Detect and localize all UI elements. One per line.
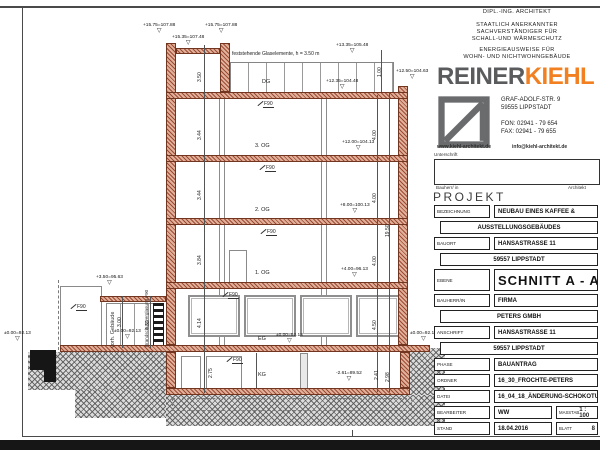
sheet-top-edge [0,6,600,8]
dim-text: 4.00 [373,130,378,140]
dg-glazing [230,62,394,93]
floor-label-3og: 3. OG [255,143,270,149]
signature-title: Unterschrift [434,152,458,157]
architect-mark-icon [437,95,491,149]
level-triangle-icon: ▽ [352,273,357,278]
kg-door [181,356,201,390]
level-triangle-icon: ▽ [157,29,162,34]
level-triangle-icon: ▽ [421,337,426,342]
row-value-datei: 16_04_18_ÄNDERUNG-SCHOKOTURM.S1 [494,390,598,403]
floor-label-2og: 2. OG [255,207,270,213]
f90-label: F90 [265,165,276,172]
slab-roof-deck [166,92,408,99]
row-value-bezeichnung: NEUBAU EINES KAFFEE & [494,205,598,218]
level-triangle-icon: ▽ [350,49,355,54]
f90-label: F90 [263,101,274,108]
level-marker: ±0.00=92.13▽ [114,330,141,340]
level-marker: +15.75=107.88▽ [205,24,237,34]
drawing-title: SCHNITT A - A [494,269,598,291]
level-marker: ±0.00=92.13▽ [276,334,303,344]
eg-window [300,295,352,337]
floor-label-eg: EG [258,336,266,342]
existing-building-outline [60,286,102,348]
wall-right [398,86,408,345]
level-marker: +12.50=104.63▽ [396,70,428,80]
dim-text: 19.50 [386,224,391,237]
foundation-black [30,350,56,370]
dim-text: 4.50 [373,320,378,330]
signature-box [434,159,600,185]
address-city: 59555 LIPPSTADT [501,105,552,112]
level-triangle-icon: ▽ [15,337,20,342]
row-label-ebene: EBENE [434,269,490,291]
fire-glazing-label: Brandschutzverglasung F90 [144,290,150,347]
row-value-bauherr: FIRMA [494,294,598,307]
eg-duct [229,250,247,284]
level-triangle-icon: ▽ [356,146,361,151]
foundation-black [44,370,56,382]
dim-text: 4.14 [198,318,203,328]
email-link[interactable]: info@kiehl-architekt.de [512,144,567,150]
level-marker: +4.00=96.13▽ [341,268,368,278]
row-label-datei: DATEI [434,390,490,403]
wall-left [166,43,176,345]
level-triangle-icon: ▽ [353,209,358,214]
basement-wall-right [400,352,410,388]
eg-window [244,295,296,337]
row-label-stand: STAND [434,422,490,435]
sheet-number-box: BLATT 8 [556,422,598,435]
f90-label: F90 [232,357,243,364]
project-heading: PROJEKT [433,190,506,204]
floor-label-kg: KG [258,372,266,378]
basement-wall-left [166,352,176,388]
level-marker: +15.75=107.88▽ [143,24,175,34]
row-value-masstab: 1 : 100 [579,407,595,419]
row-value-bauherr-2: PETERS GMBH [440,310,598,323]
f90-label: F90 [76,304,87,311]
level-triangle-icon: ▽ [287,339,292,344]
kg-wall [300,353,308,390]
eg-window [188,295,240,337]
kg-partition-line [256,353,257,388]
eg-window [356,295,400,337]
level-triangle-icon: ▽ [125,335,130,340]
row-value-bauort-2: 59557 LIPPSTADT [440,253,598,266]
level-marker: +12.00=104.13▽ [342,141,374,151]
level-triangle-icon: ▽ [347,377,352,382]
dim-text: 4.00 [373,193,378,203]
sheet-left-edge [22,6,23,437]
row-value-bauort: HANSASTRASSE 11 [494,237,598,250]
scale-box: MASSTAB 1 : 100 [556,406,598,419]
level-marker: +13.35=105.48▽ [336,44,368,54]
excavation-dashed-outline [172,398,412,411]
row-value-bearbeiter: WW [494,406,552,419]
slab-1og [166,282,408,289]
level-triangle-icon: ▽ [107,281,112,286]
website-link[interactable]: www.kiehl-architekt.de [437,144,491,150]
dim-line [389,92,390,392]
row-value-anschrift: HANSASTRASSE 11 [494,326,598,339]
level-marker: +15.35=107.48▽ [172,36,204,46]
level-marker: +8.00=100.13▽ [340,204,370,214]
dim-text: 2.75 [209,368,214,378]
row-value-stand: 18.04.2016 [494,422,552,435]
architect-subtitle: SCHALL-UND WÄRMESCHUTZ [436,36,598,42]
address-street: GRAF-ADOLF-STR. 9 [501,97,560,104]
dim-line [204,45,205,393]
firm-logo: REINERKIEHL [437,63,594,91]
level-triangle-icon: ▽ [219,29,224,34]
row-label-blatt: BLATT [559,426,572,431]
dim-text: 3.44 [198,190,203,200]
architect-subtitle: SACHVERSTÄNDIGER FÜR [436,29,598,35]
level-marker: -2.61=89.52▽ [336,372,362,382]
level-marker: ±0.00=92.13▽ [410,332,437,342]
section-cut-band [153,303,164,349]
row-label-bearbeiter: BEARBEITER [434,406,490,419]
dim-text: 3.00 [118,317,123,327]
dim-text: 4.00 [373,256,378,266]
row-value-bezeichnung-2: AUSSTELLUNGSGEBÄUDES [440,221,598,234]
dim-text: 2.98 [386,372,391,382]
dim-text: 3.84 [198,255,203,265]
row-label-bezeichnung: BEZEICHNUNG [434,205,490,218]
architect-title: DIPL.-ING. ARCHITEKT [436,9,598,15]
level-marker: ±0.00=92.13▽ [4,332,31,342]
row-label-anschrift: ANSCHRIFT [434,326,490,339]
roof-upper-slab [176,48,220,54]
level-triangle-icon: ▽ [340,85,345,90]
annex-roof-slab [100,296,166,302]
window-bottom-bar [0,440,600,450]
f90-label: F90 [266,229,277,236]
row-value-phase: BAUANTRAG [494,358,598,371]
level-marker: +3.50=95.63▽ [96,276,123,286]
existing-boundary-line [58,280,59,350]
row-label-ordner: ORDNER [434,374,490,387]
parapet-wall [220,43,230,92]
architect-subtitle: STAATLICH ANERKANNTER [436,22,598,28]
architect-subtitle: ENERGIEAUSWEISE FÜR [436,47,598,53]
row-label-masstab: MASSTAB [559,410,579,415]
signature-right-label: Architekt [568,185,586,190]
row-value-anschrift-2: 59557 LIPPSTADT [440,342,598,355]
plan-sheet: DG 3. OG 2. OG 1. OG EG KG F90 F90 F90 F… [0,0,600,450]
dim-text: 3.50 [198,72,203,82]
slab-3og [166,155,408,162]
row-label-bauort: BAUORT [434,237,490,250]
dim-text: 2.41 [375,370,380,380]
row-value-ordner: 16_30_FROCHTE-PETERS [494,374,598,387]
level-triangle-icon: ▽ [186,41,191,46]
sheet-bottom-edge [22,436,600,437]
ground-hatch [410,348,445,395]
level-marker: +12.35=104.48▽ [326,80,358,90]
slab-basement [166,388,410,395]
ground-hatch [75,390,166,418]
fax: FAX: 02941 - 79 655 [501,129,556,136]
dim-text: 3.44 [198,130,203,140]
glazing-note: feststehende Glaselemente, h = 3.50 m [232,52,319,57]
dim-text: 1.00 [378,67,383,77]
slab-2og [166,218,408,225]
level-triangle-icon: ▽ [410,75,415,80]
sheet-bottom-tick [352,430,353,436]
floor-label-1og: 1. OG [255,270,270,276]
phone: FON: 02941 - 79 654 [501,121,557,128]
row-label-phase: PHASE [434,358,490,371]
row-label-bauherr: BAUHERR/IN [434,294,490,307]
existing-building-label: vorh. Gebäude [110,312,116,348]
floor-label-dg: DG [262,79,270,85]
f90-label: F90 [228,292,239,299]
architect-subtitle: WOHN- UND NICHTWOHNGEBÄUDE [436,54,598,60]
row-value-blatt: 8 [592,426,595,432]
